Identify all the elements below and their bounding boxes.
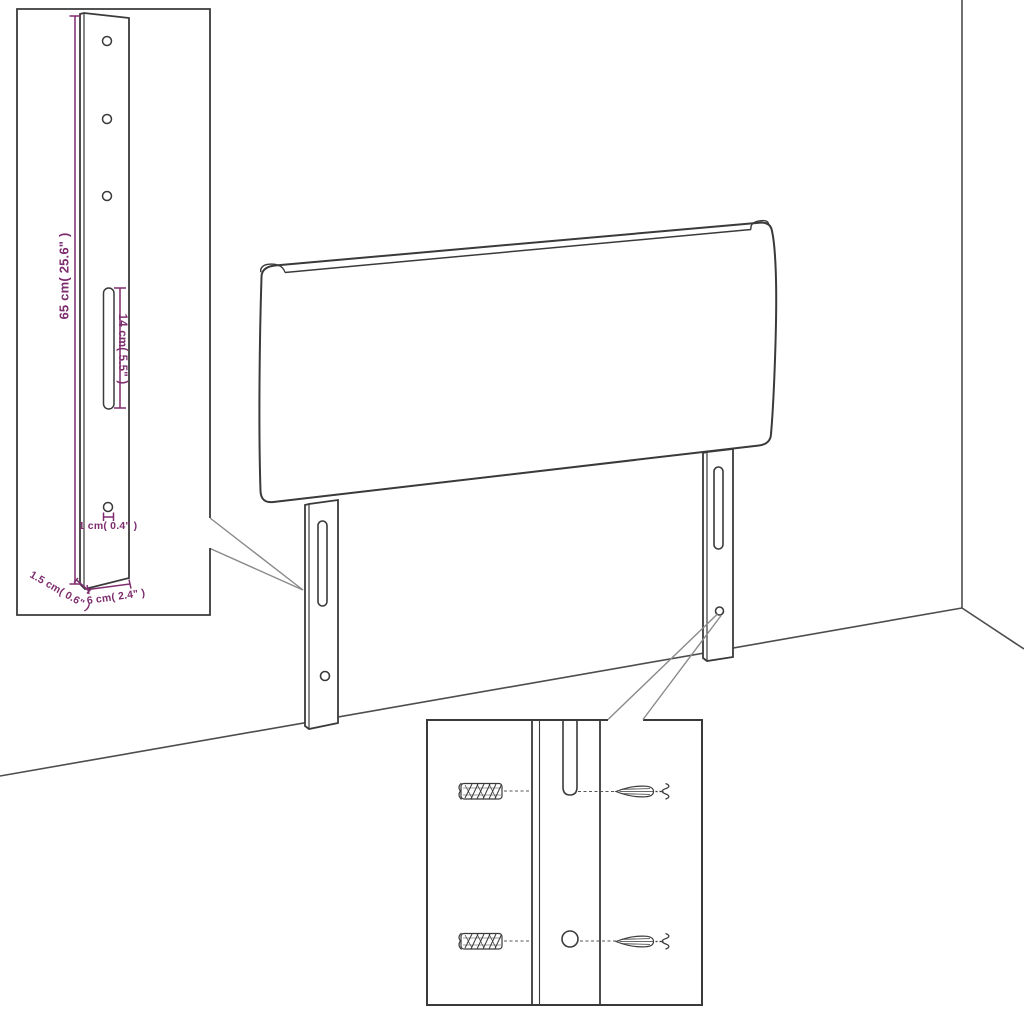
headboard-panel <box>259 221 776 503</box>
headboard-outline <box>259 223 776 503</box>
floor-line-right <box>962 608 1024 649</box>
mounting-detail-callout <box>427 720 702 1005</box>
leg-detail-drawing <box>80 13 129 589</box>
line-art-scene <box>0 0 1024 1024</box>
callout-leader-lines <box>209 518 722 720</box>
dim-label-slot-length: 14 cm( 5.5" ) <box>116 314 128 385</box>
mount-callout-leader-right <box>643 615 722 720</box>
dim-label-hole-diameter: 1 cm( 0.4" ) <box>79 520 138 532</box>
dim-label-leg-height: 65 cm( 25.6" ) <box>57 232 72 319</box>
headboard-right-leg <box>703 449 733 661</box>
headboard-left-leg <box>305 500 338 729</box>
diagram-canvas: 65 cm( 25.6" ) 14 cm( 5.5" ) 1 cm( 0.4" … <box>0 0 1024 1024</box>
